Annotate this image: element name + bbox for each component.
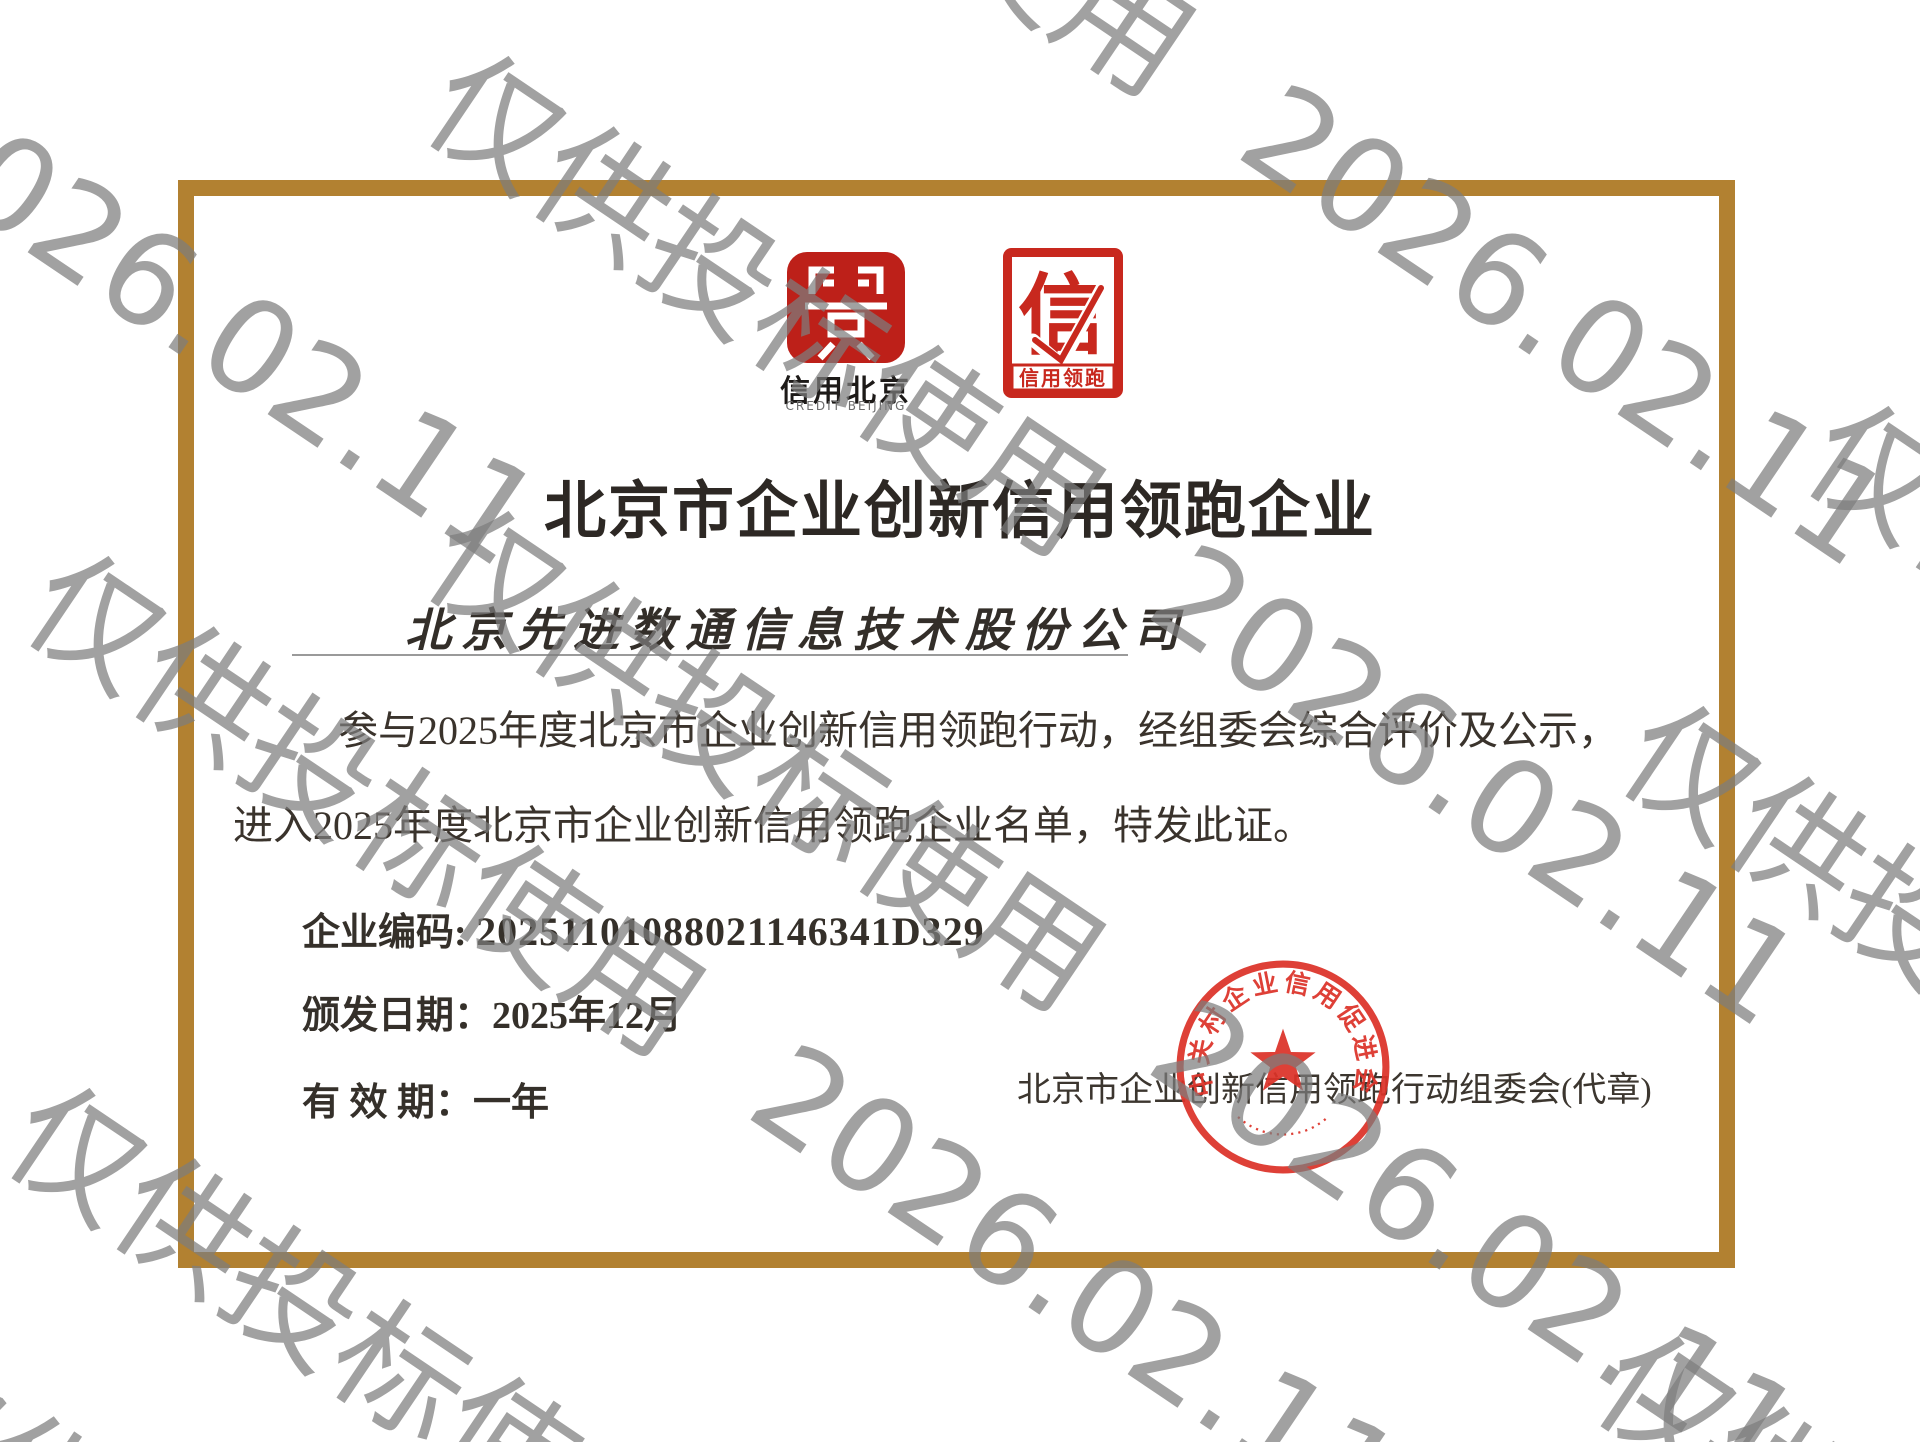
issue-date-value: 2025年12月	[492, 995, 682, 1037]
credit-beijing-logo-icon	[787, 252, 905, 363]
issue-date-label: 颁发日期：	[302, 995, 492, 1037]
company-name: 北京先进数通信息技术股份公司	[405, 594, 1189, 660]
issue-date-row: 颁发日期：2025年12月	[302, 984, 682, 1039]
body-text-line-1: 参与2025年度北京市企业创新信用领跑行动，经组委会综合评价及公示，	[338, 698, 1618, 756]
official-seal-icon: 中关村企业信用促进会 ··················	[1172, 956, 1394, 1178]
validity-value: 一年	[473, 1082, 549, 1124]
enterprise-code-row: 企业编码: 20251101088021146341D329	[302, 901, 985, 956]
validity-row: 有 效 期：一年	[302, 1071, 549, 1126]
seal-graphic-icon: 中关村企业信用促进会 ··················	[1172, 956, 1394, 1178]
validity-label: 有 效 期：	[302, 1082, 473, 1124]
credit-leader-stamp-icon: 信 信用领跑	[1003, 248, 1123, 398]
credit-beijing-caption-en: CREDIT BEIJING	[766, 399, 926, 413]
certificate-page: 信用北京 CREDIT BEIJING 信 信用领跑 北京市企业创新信用领跑企业…	[0, 0, 1920, 1442]
credit-beijing-emblem-icon	[787, 252, 905, 363]
body-text-line-2: 进入2025年度北京市企业创新信用领跑企业名单，特发此证。	[233, 793, 1313, 851]
credit-leader-emblem-icon: 信 信用领跑	[1003, 248, 1123, 398]
enterprise-code-value: 20251101088021146341D329	[476, 909, 984, 954]
watermark-text: 仅供投标使用 2026.02.11	[0, 1290, 1284, 1442]
enterprise-code-label: 企业编码:	[302, 912, 476, 954]
watermark-text: 仅供投标使用 2026.02.11	[1565, 1280, 1920, 1442]
certificate-title: 北京市企业创新信用领跑企业	[0, 460, 1920, 550]
credit-leader-label: 信用领跑	[1019, 366, 1107, 390]
